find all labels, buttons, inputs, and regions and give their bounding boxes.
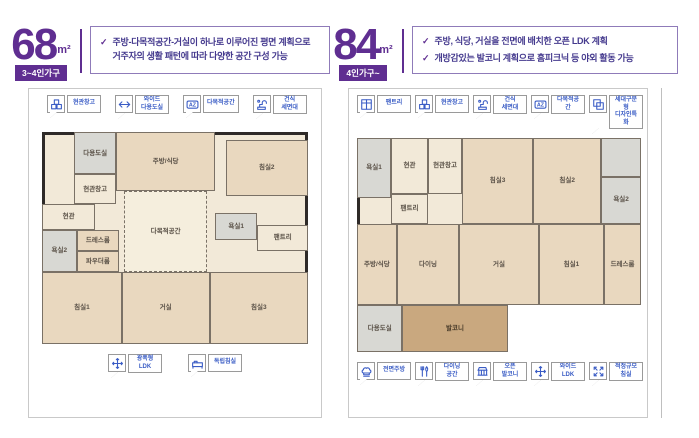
balcony-icon xyxy=(473,362,491,380)
floorplan-room: 침실1 xyxy=(539,224,604,305)
faucet-icon xyxy=(253,95,271,113)
left-area-value: 68m² xyxy=(11,26,70,63)
room-label: 현관창고 xyxy=(83,186,107,193)
floorplan-room: 다용도실 xyxy=(74,132,117,174)
legend-label: 건식 세면대 xyxy=(493,95,527,114)
legend-label: 현관창고 xyxy=(67,95,101,113)
area-unit: m² xyxy=(379,44,392,56)
check-icon: ✓ xyxy=(100,36,108,50)
room-label: 침실3 xyxy=(251,304,267,311)
legend-label: 와이드 다용도실 xyxy=(135,95,169,114)
header-divider xyxy=(80,29,82,73)
feature-bullet: ✓주방-다목적공간-거실이 하나로 이루어진 평면 계획으로 거주자의 생활 패… xyxy=(100,36,320,64)
floorplan-room: 침실2 xyxy=(226,140,308,195)
room-label: 파우더룸 xyxy=(86,258,110,265)
floorplan-room: 팬트리 xyxy=(391,194,428,224)
legend-chip: 현관창고 xyxy=(47,95,101,113)
floorplan-room: 침실2 xyxy=(533,138,601,224)
left-plan-header: 68m² 3~4인가구 ✓주방-다목적공간-거실이 하나로 이루어진 평면 계획… xyxy=(8,26,330,81)
floorplan-room: 발코니 xyxy=(402,305,507,352)
legend-chip: 세대구분형 디자인특화 xyxy=(589,95,643,129)
move-arrows-icon xyxy=(531,362,549,380)
legend-chip: 와이드 LDK xyxy=(531,362,585,381)
feature-bullet: ✓주방, 식당, 거실을 전면에 배치한 오픈 LDK 계획 xyxy=(422,35,668,49)
legend-chip: AZ다목적공간 xyxy=(531,95,585,114)
floorplan-room: 주방/식당 xyxy=(357,224,397,305)
move-arrows-icon xyxy=(108,354,126,372)
left-household-badge: 3~4인가구 xyxy=(15,65,67,81)
right-plan-header: 84m² 4인가구~ ✓주방, 식당, 거실을 전면에 배치한 오픈 LDK 계… xyxy=(330,26,678,81)
right-feature-box: ✓주방, 식당, 거실을 전면에 배치한 오픈 LDK 계획✓개방감있는 발코니… xyxy=(412,26,678,74)
floorplan-room: 침실1 xyxy=(42,272,122,344)
feature-bullet: ✓개방감있는 발코니 계획으로 홈피크닉 등 야외 활동 가능 xyxy=(422,52,668,66)
faucet-icon xyxy=(473,95,491,113)
area-unit: m² xyxy=(57,44,70,56)
column-divider-line xyxy=(661,88,662,418)
storage-boxes-icon xyxy=(47,95,65,113)
floorplan-room: 다목적공간 xyxy=(124,191,206,272)
legend-chip: 오픈 발코니 xyxy=(473,362,527,381)
legend-label: 건식 세면대 xyxy=(273,95,307,114)
room-label: 다이닝 xyxy=(419,261,437,268)
storage-boxes-icon xyxy=(415,95,433,113)
room-label: 거실 xyxy=(493,261,505,268)
room-label: 욕실1 xyxy=(366,164,382,171)
floorplan-room: 팬트리 xyxy=(257,225,308,250)
bed-icon xyxy=(188,354,206,372)
floorplan-room: 거실 xyxy=(122,272,210,344)
legend-label: 팬트리 xyxy=(377,95,411,113)
legend-label: 다이닝 공간 xyxy=(435,362,469,381)
legend-label: 적정규모 침실 xyxy=(609,362,643,381)
floorplan-room: 다용도실 xyxy=(357,305,402,352)
left-legend-top: 현관창고와이드 다용도실AZ다목적공간건식 세면대 xyxy=(37,95,313,123)
room-label: 침실3 xyxy=(490,177,506,184)
legend-chip: 광폭형 LDK xyxy=(108,354,162,373)
legend-chip: 와이드 다용도실 xyxy=(115,95,169,114)
feature-text: 주방-다목적공간-거실이 하나로 이루어진 평면 계획으로 거주자의 생활 패턴… xyxy=(113,36,320,64)
floorplan-room xyxy=(601,138,641,177)
room-label: 다용도실 xyxy=(83,150,107,157)
right-floorplan: 욕실1현관현관창고침실3침실2욕실2팬트리주방/식당다이닝거실침실1드레스룸다용… xyxy=(357,138,641,352)
az-badge-icon: AZ xyxy=(531,95,549,113)
room-label: 거실 xyxy=(160,304,172,311)
right-area-value: 84m² xyxy=(333,26,392,63)
legend-chip: 현관창고 xyxy=(415,95,469,113)
legend-label: 다목적공간 xyxy=(551,95,585,114)
legend-label: 광폭형 LDK xyxy=(128,354,162,373)
floorplan-room: 현관창고 xyxy=(74,174,117,204)
feature-text: 개방감있는 발코니 계획으로 홈피크닉 등 야외 활동 가능 xyxy=(435,52,634,66)
legend-label: 다목적공간 xyxy=(203,95,239,113)
floorplan-room: 현관 xyxy=(391,138,428,194)
left-legend-bottom: 광폭형 LDK독립침실 xyxy=(37,354,313,382)
cutlery-icon xyxy=(415,362,433,380)
wide-arrow-icon xyxy=(115,95,133,113)
legend-label: 오픈 발코니 xyxy=(493,362,527,381)
room-label: 팬트리 xyxy=(401,205,419,212)
room-label: 침실2 xyxy=(259,164,275,171)
diagonal-arrows-icon xyxy=(589,362,607,380)
right-legend-bottom: 전면주방다이닝 공간오픈 발코니와이드 LDK적정규모 침실 xyxy=(357,362,639,390)
room-label: 주방/식당 xyxy=(364,261,390,268)
floorplan-room: 욕실1 xyxy=(357,138,391,198)
room-label: 욕실2 xyxy=(52,247,68,254)
legend-chip: 다이닝 공간 xyxy=(415,362,469,381)
right-plan-box: 팬트리현관창고건식 세면대AZ다목적공간세대구분형 디자인특화 욕실1현관현관창… xyxy=(348,88,648,418)
chef-hat-icon xyxy=(357,362,375,380)
floorplan-room: 거실 xyxy=(459,224,539,305)
svg-text:AZ: AZ xyxy=(188,102,196,108)
room-label: 발코니 xyxy=(446,325,464,332)
room-label: 다용도실 xyxy=(368,325,392,332)
floorplan-room: 드레스룸 xyxy=(77,230,120,251)
check-icon: ✓ xyxy=(422,35,430,49)
floorplan-room: 침실3 xyxy=(462,138,533,224)
floorplan-infographic-page: 68m² 3~4인가구 ✓주방-다목적공간-거실이 하나로 이루어진 평면 계획… xyxy=(0,0,699,438)
left-area-block: 68m² 3~4인가구 xyxy=(8,26,74,81)
legend-label: 현관창고 xyxy=(435,95,469,113)
room-label: 팬트리 xyxy=(274,234,292,241)
room-label: 현관창고 xyxy=(433,162,457,169)
left-floorplan: 다용도실주방/식당침실2현관창고현관욕실2드레스룸파우더룸다목적공간욕실1팬트리… xyxy=(42,132,308,344)
legend-chip: 전면주방 xyxy=(357,362,411,380)
header-divider xyxy=(402,29,404,73)
floorplan-room: 현관창고 xyxy=(428,138,462,194)
legend-chip: AZ다목적공간 xyxy=(183,95,239,113)
room-label: 현관 xyxy=(404,162,416,169)
legend-label: 세대구분형 디자인특화 xyxy=(609,95,643,129)
right-household-badge: 4인가구~ xyxy=(339,65,386,81)
legend-label: 독립침실 xyxy=(208,354,242,372)
legend-label: 와이드 LDK xyxy=(551,362,585,381)
room-label: 현관 xyxy=(63,213,75,220)
room-label: 침실1 xyxy=(564,261,580,268)
left-plan-box: 현관창고와이드 다용도실AZ다목적공간건식 세면대 다용도실주방/식당침실2현관… xyxy=(28,88,322,418)
pantry-icon xyxy=(357,95,375,113)
legend-chip: 팬트리 xyxy=(357,95,411,113)
room-label: 드레스룸 xyxy=(86,237,110,244)
room-label: 다목적공간 xyxy=(151,228,181,235)
floorplan-room: 파우더룸 xyxy=(77,251,120,272)
legend-chip: 건식 세면대 xyxy=(473,95,527,114)
floorplan-room: 침실3 xyxy=(210,272,308,344)
room-label: 드레스룸 xyxy=(611,261,635,268)
left-feature-box: ✓주방-다목적공간-거실이 하나로 이루어진 평면 계획으로 거주자의 생활 패… xyxy=(90,26,330,74)
room-label: 욕실2 xyxy=(613,196,629,203)
right-legend-top: 팬트리현관창고건식 세면대AZ다목적공간세대구분형 디자인특화 xyxy=(357,95,639,129)
check-icon: ✓ xyxy=(422,52,430,66)
floorplan-room: 다이닝 xyxy=(397,224,459,305)
right-area-block: 84m² 4인가구~ xyxy=(330,26,396,81)
legend-chip: 적정규모 침실 xyxy=(589,362,643,381)
az-badge-icon: AZ xyxy=(183,95,201,113)
room-label: 주방/식당 xyxy=(153,158,179,165)
legend-chip: 건식 세면대 xyxy=(253,95,307,114)
legend-label: 전면주방 xyxy=(377,362,411,380)
dual-unit-icon xyxy=(589,95,607,113)
room-label: 침실2 xyxy=(559,177,575,184)
room-label: 침실1 xyxy=(74,304,90,311)
floorplan-room: 욕실2 xyxy=(42,230,77,272)
feature-text: 주방, 식당, 거실을 전면에 배치한 오픈 LDK 계획 xyxy=(435,35,608,49)
floorplan-room: 욕실1 xyxy=(215,213,258,241)
room-label: 욕실1 xyxy=(228,223,244,230)
legend-chip: 독립침실 xyxy=(188,354,242,372)
floorplan-room: 욕실2 xyxy=(601,177,641,224)
floorplan-room: 드레스룸 xyxy=(604,224,641,305)
floorplan-room: 주방/식당 xyxy=(116,132,214,191)
svg-text:AZ: AZ xyxy=(536,102,544,108)
floorplan-room: 현관 xyxy=(42,204,95,229)
